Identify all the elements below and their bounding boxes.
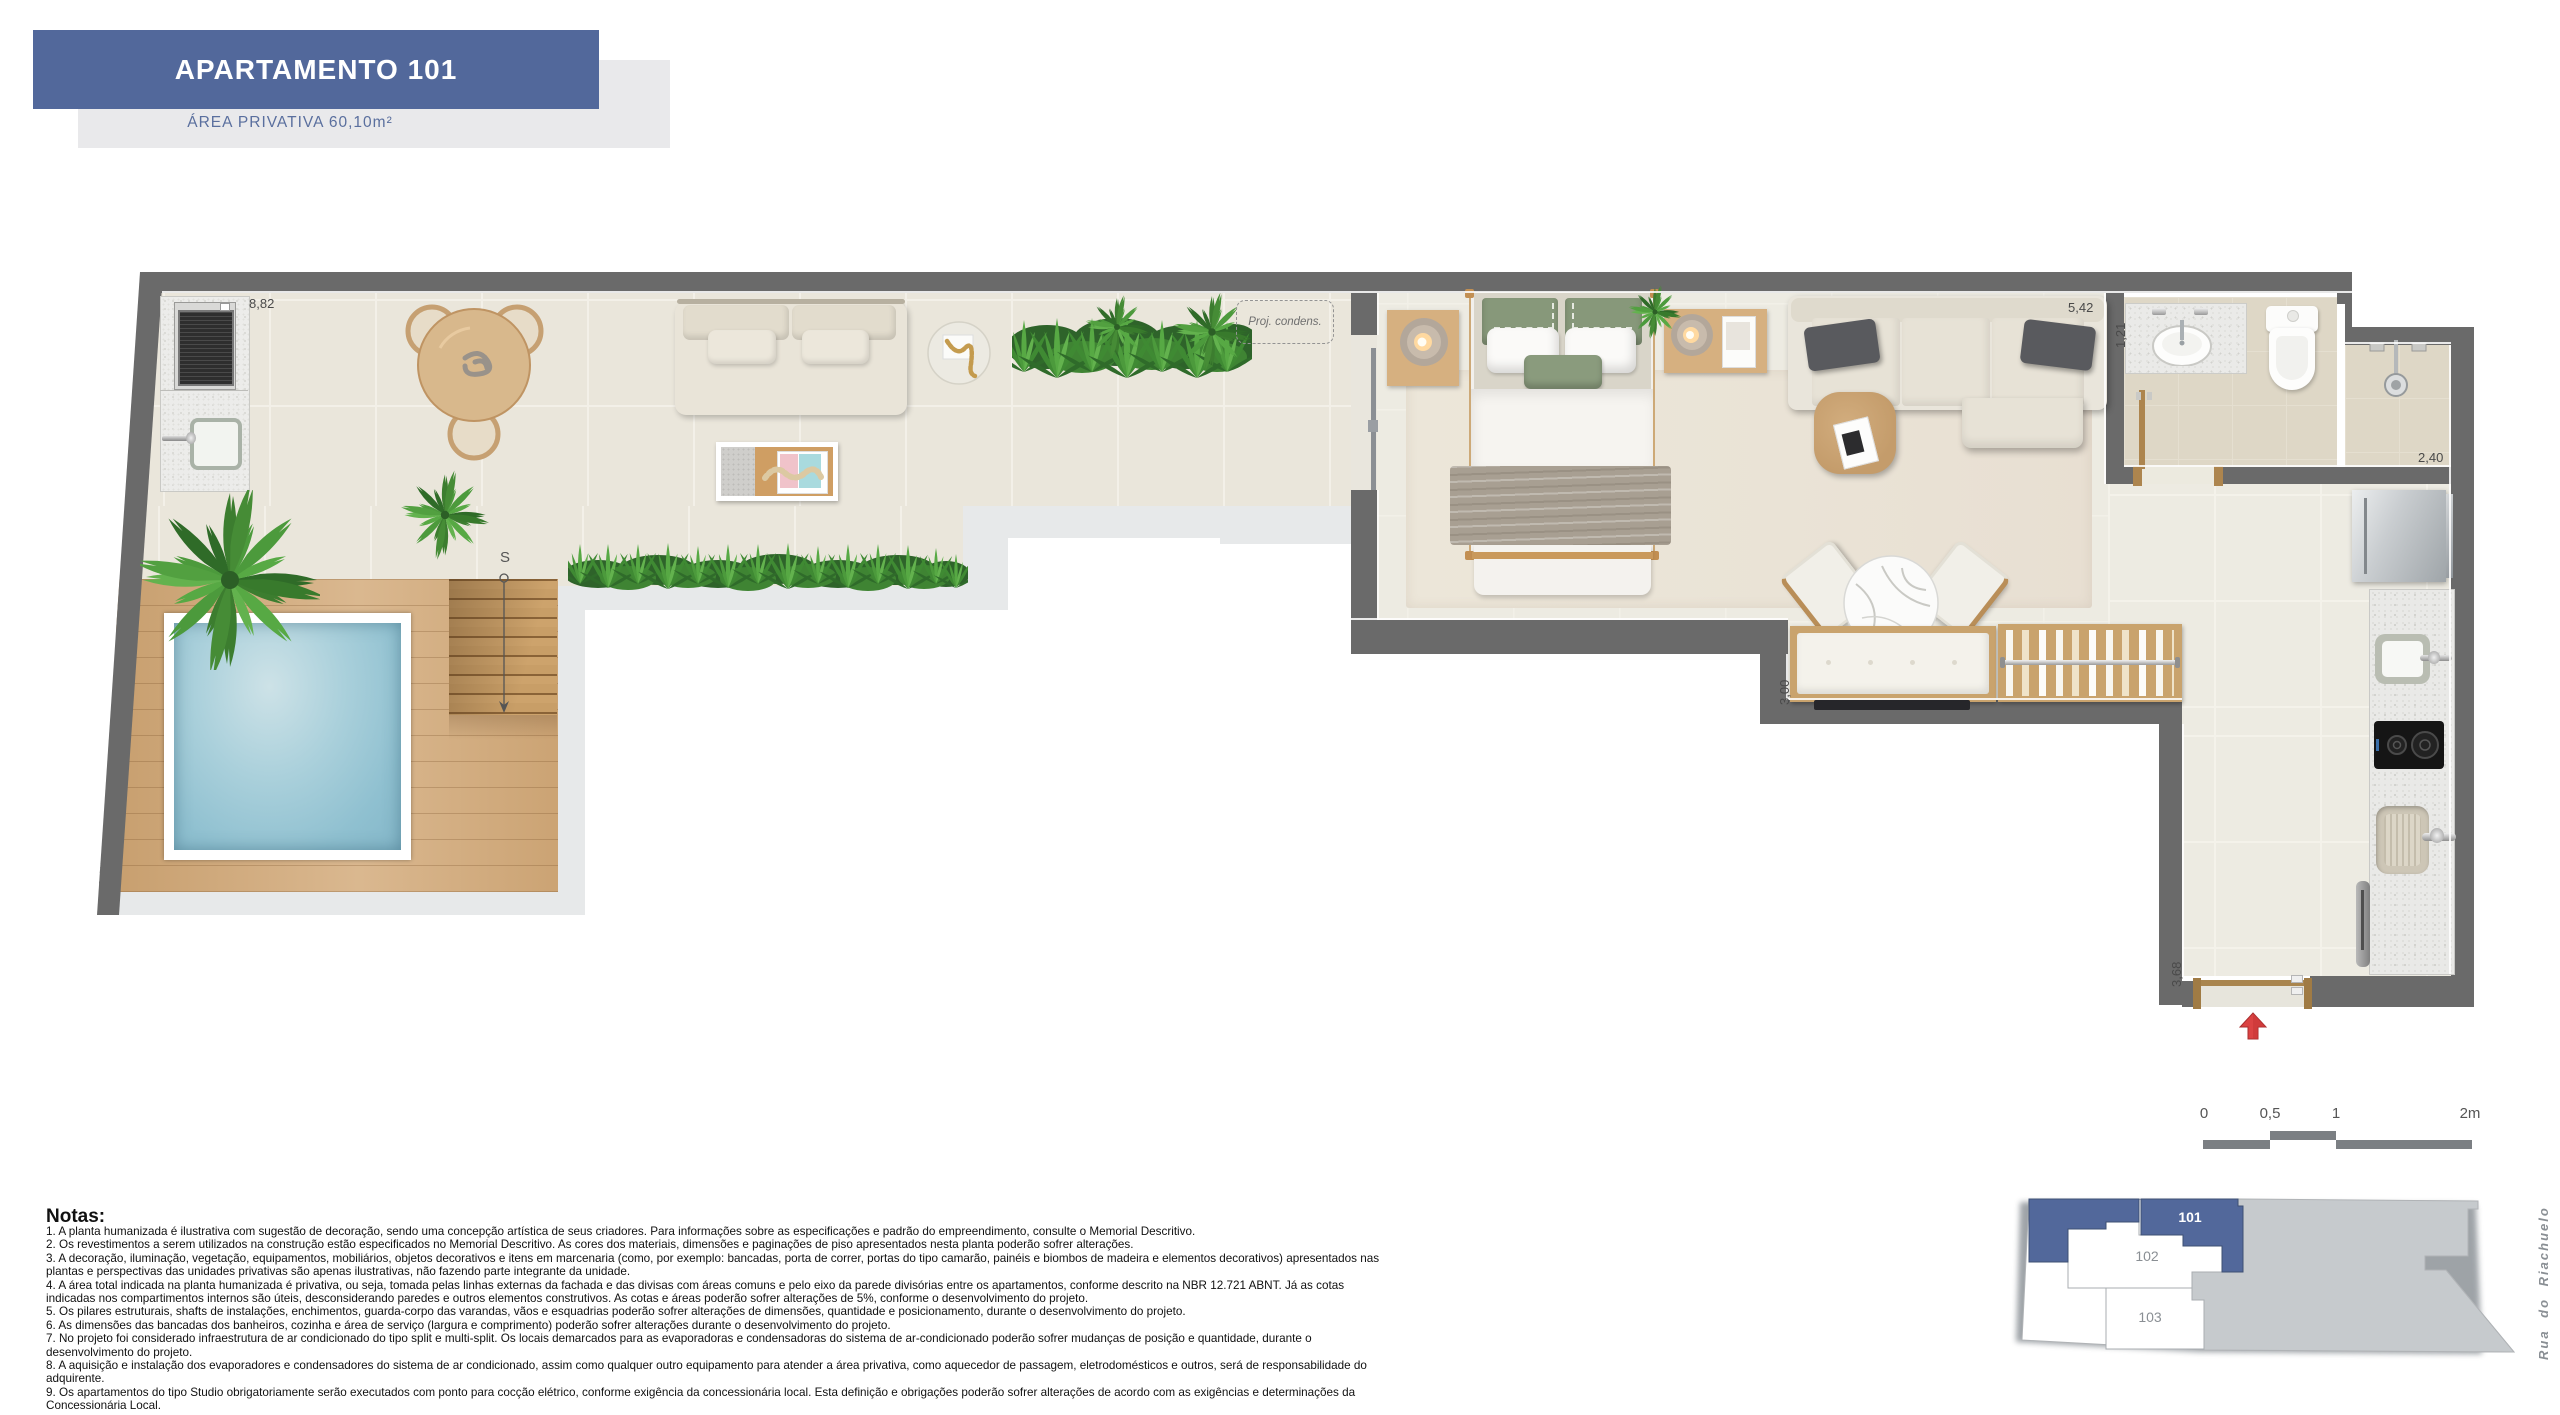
svg-text:103: 103 [2138,1309,2162,1325]
svg-text:102: 102 [2135,1248,2159,1264]
svg-text:101: 101 [2178,1209,2202,1225]
svg-text:S: S [500,549,510,566]
